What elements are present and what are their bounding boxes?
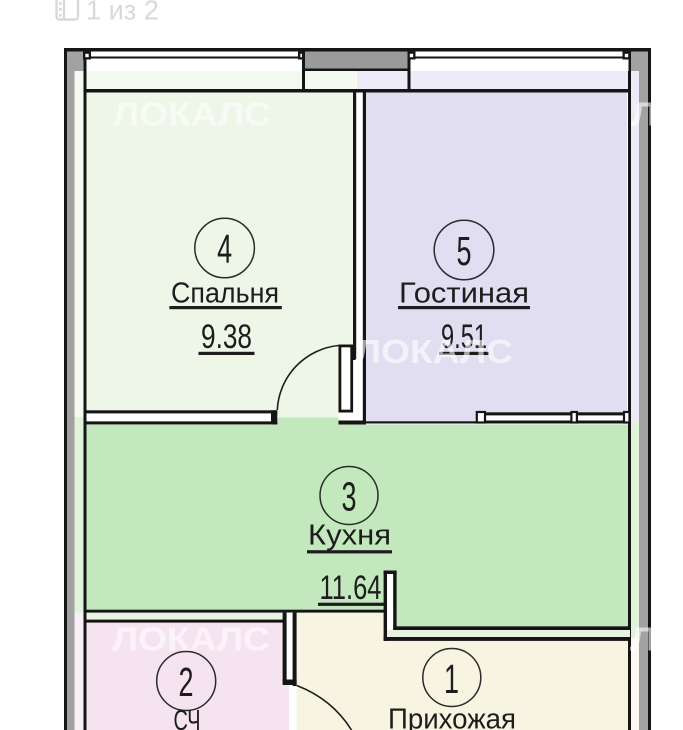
- svg-text:1: 1: [444, 656, 459, 702]
- svg-text:Прихожая: Прихожая: [388, 704, 516, 730]
- svg-text:2: 2: [179, 659, 194, 705]
- svg-text:9.38: 9.38: [201, 318, 252, 356]
- svg-text:Спальня: Спальня: [171, 278, 279, 310]
- svg-text:3: 3: [342, 474, 357, 520]
- svg-text:ЛОКАЛС: ЛОКАЛС: [113, 96, 271, 133]
- svg-text:ЛОКАЛС: ЛОКАЛС: [630, 621, 683, 658]
- svg-text:ЛОКАЛС: ЛОКАЛС: [631, 96, 683, 133]
- svg-text:ЛОКАЛС: ЛОКАЛС: [112, 621, 270, 658]
- svg-text:4: 4: [217, 226, 232, 272]
- svg-text:1 из 2: 1 из 2: [86, 0, 159, 26]
- svg-text:ЛОКАЛС: ЛОКАЛС: [355, 333, 513, 370]
- svg-text:СЧ: СЧ: [174, 705, 201, 730]
- svg-text:5: 5: [457, 228, 472, 274]
- svg-text:Гостиная: Гостиная: [399, 278, 529, 310]
- svg-text:Кухня: Кухня: [308, 520, 391, 552]
- svg-text:11.64: 11.64: [320, 569, 382, 607]
